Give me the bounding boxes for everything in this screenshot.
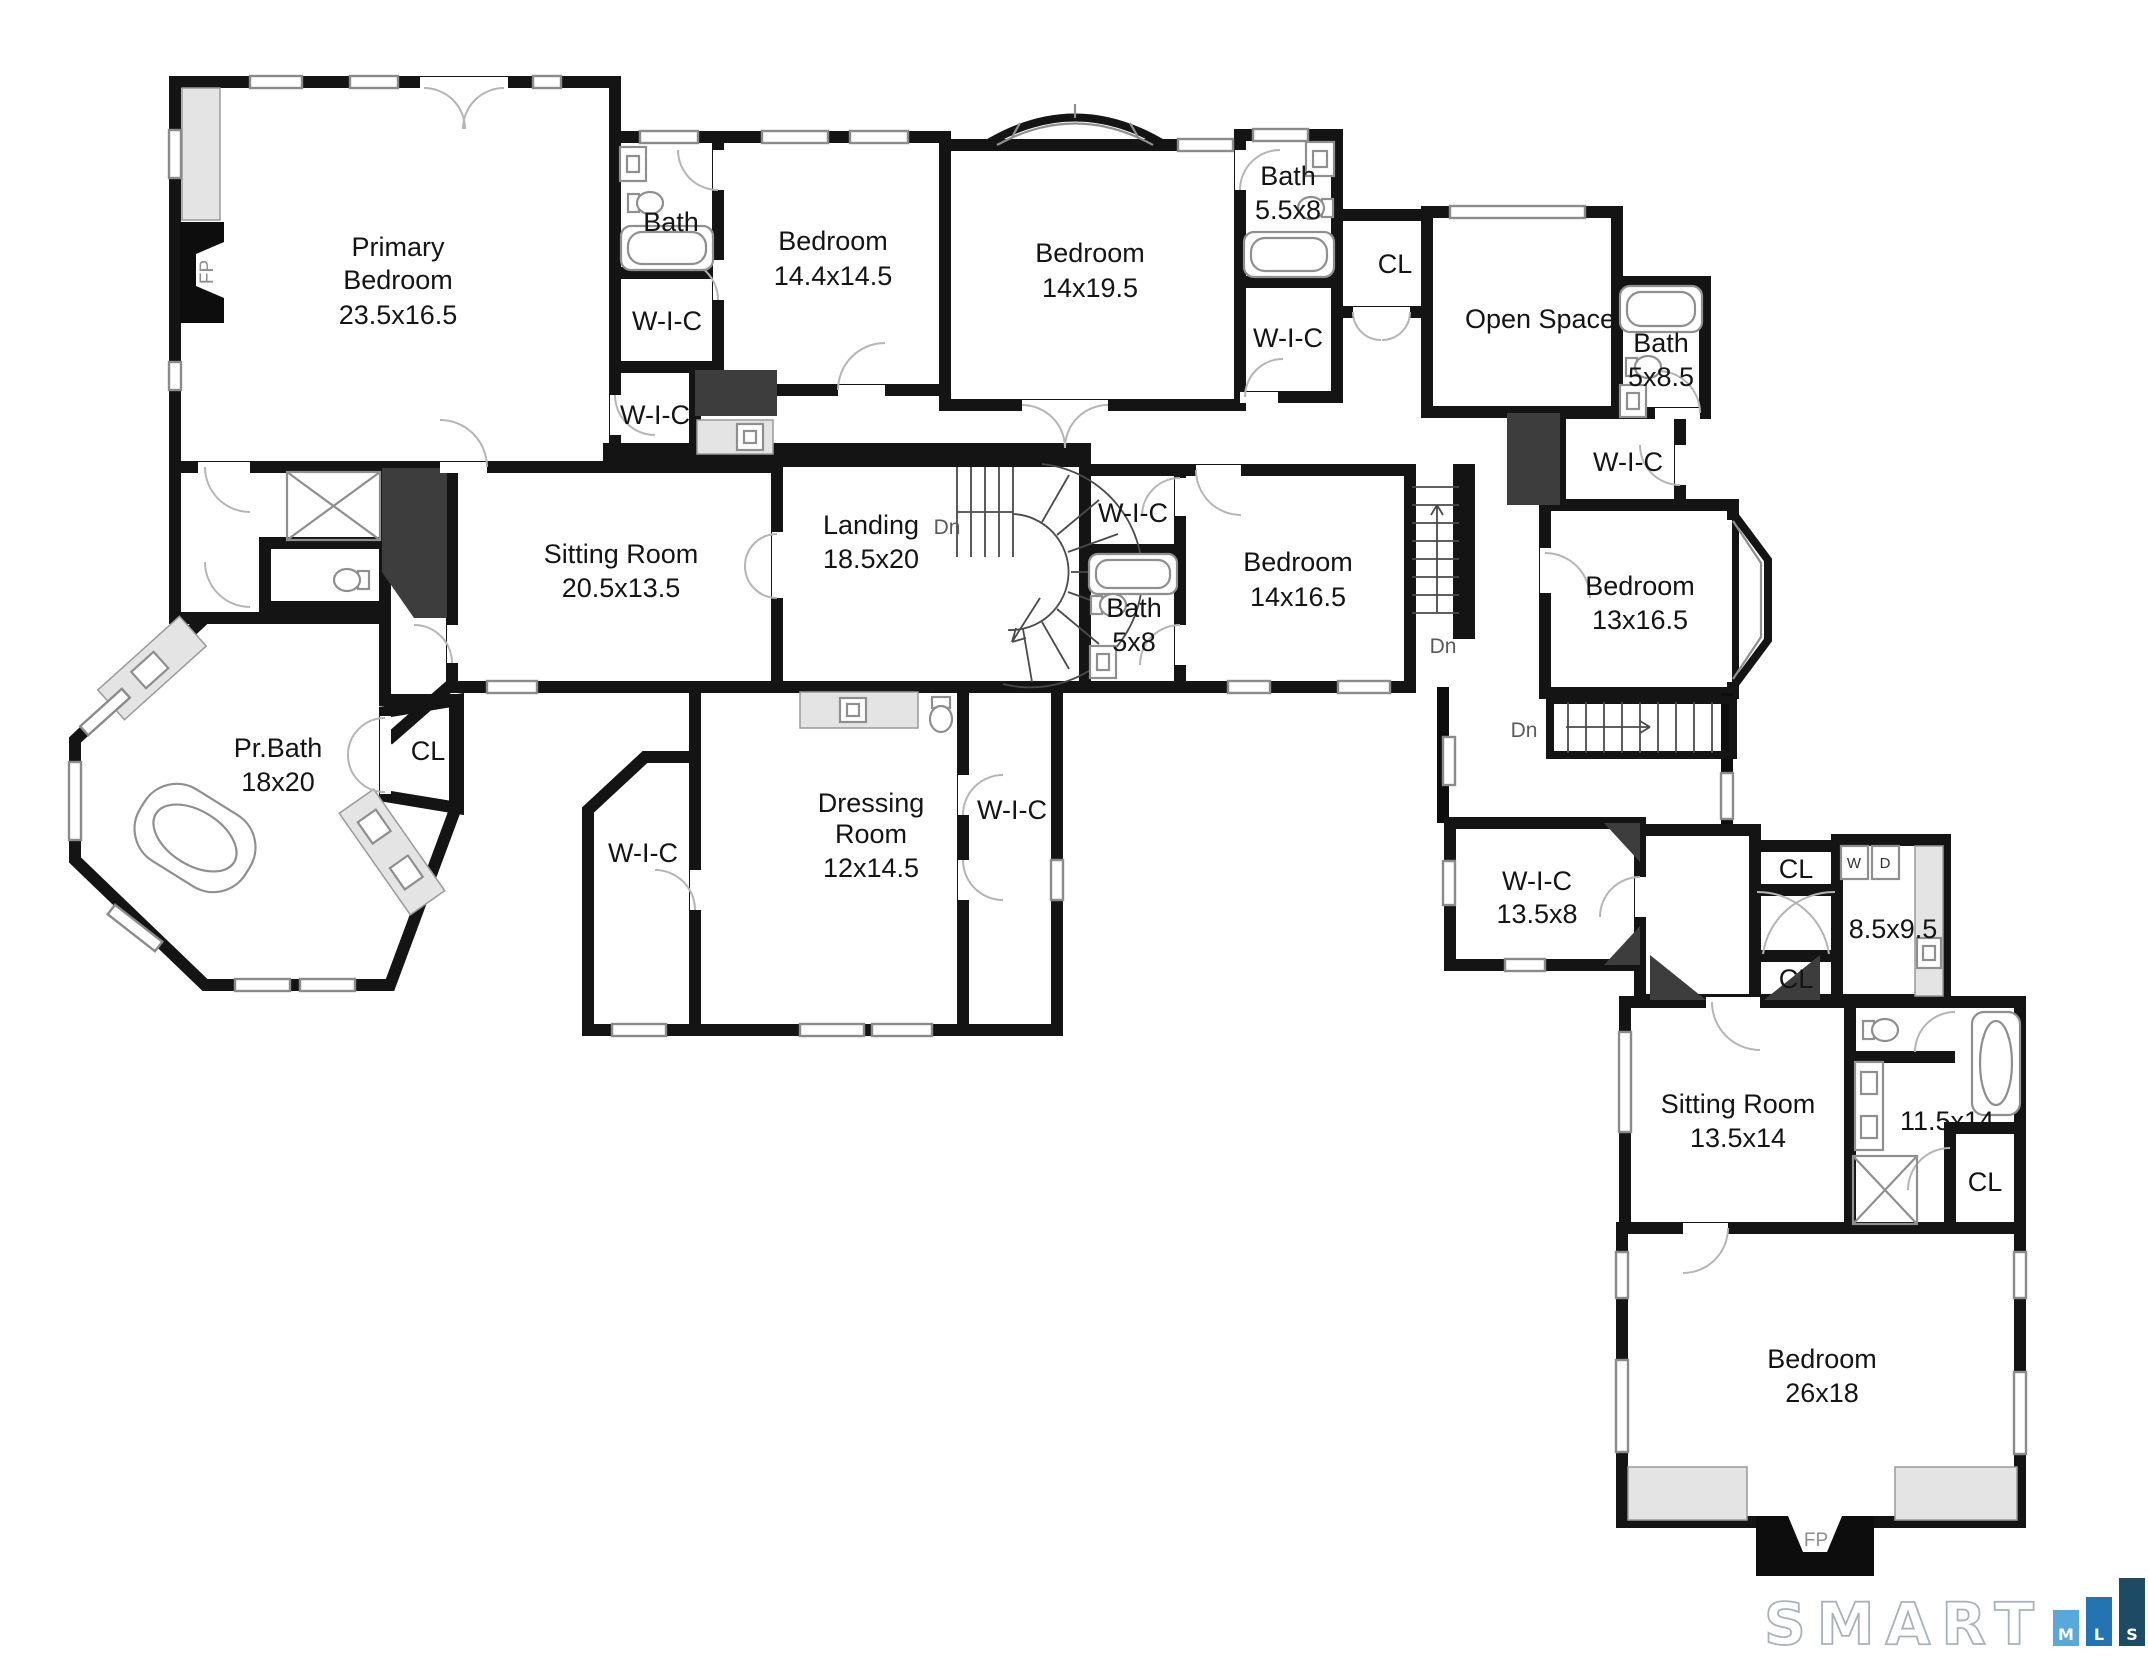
toilet <box>930 697 952 732</box>
room-label-wic: W-I-C <box>632 306 702 336</box>
logo-m-letter: M <box>2058 1625 2074 1644</box>
toilet <box>1863 1019 1898 1041</box>
room-label-pr-bath: Pr.Bath <box>234 733 323 763</box>
stair-label-dn: Dn <box>1430 635 1457 658</box>
room-dims-dressing-room: 12x14.5 <box>823 853 919 883</box>
room-dims-bedroom: 14.4x14.5 <box>774 261 893 291</box>
room-label-bath: Bath <box>1633 328 1689 358</box>
room-dims-laundry: 8.5x9.5 <box>1849 914 1938 944</box>
room-dims-sitting-room: 13.5x14 <box>1690 1123 1786 1153</box>
room-label-wic: W-I-C <box>620 400 690 430</box>
staircase-down-horizontal <box>1550 700 1733 755</box>
floor-plan-page: Primary Bedroom 23.5x16.5 Bath W-I-C W-I… <box>0 0 2148 1659</box>
room-label-bedroom: Bedroom <box>1585 571 1695 601</box>
room-label-bath: Bath <box>1260 161 1316 191</box>
room-label-cl: CL <box>1968 1167 2003 1197</box>
smartmls-logo: SMART M L S <box>1764 1578 2145 1658</box>
toilet <box>334 569 369 591</box>
washer-label: W <box>1847 855 1862 872</box>
sink <box>620 147 646 181</box>
logo-wordmark: SMART <box>1764 1590 2045 1658</box>
room-label-wic: W-I-C <box>1502 866 1572 896</box>
room-label-dressing-room: Dressing <box>818 788 925 818</box>
room-label-bedroom: Bedroom <box>1767 1344 1877 1374</box>
window-seat <box>1895 1467 2017 1520</box>
room-labels: Primary Bedroom 23.5x16.5 Bath W-I-C W-I… <box>197 161 2002 1551</box>
room-dims-bedroom: 26x18 <box>1785 1378 1859 1408</box>
room-label-cl: CL <box>1779 964 1814 994</box>
sink <box>737 424 763 450</box>
room-label-cl: CL <box>1779 854 1814 884</box>
room-label-bedroom: Bedroom <box>778 226 888 256</box>
room-label-primary-bedroom: Primary <box>352 232 445 262</box>
bathtub <box>1972 1012 2020 1115</box>
room-label-primary-bedroom: Bedroom <box>343 265 453 295</box>
room-dims-bedroom: 14x16.5 <box>1250 582 1346 612</box>
room-label-bath: Bath <box>1106 593 1162 623</box>
room-label-landing: Landing <box>823 510 919 540</box>
room-dims-bath: 5x8 <box>1112 627 1156 657</box>
room-label-bedroom: Bedroom <box>1243 547 1353 577</box>
stair-label-dn: Dn <box>1511 719 1538 742</box>
fireplace-label: FP <box>197 260 218 284</box>
sink <box>840 698 866 722</box>
room-dims-wic: 13.5x8 <box>1496 899 1577 929</box>
room-label-wic: W-I-C <box>1593 447 1663 477</box>
stair-label-dn: Dn <box>934 516 961 539</box>
logo-l-letter: L <box>2094 1625 2104 1644</box>
staircase-down-vertical <box>1412 487 1459 613</box>
bathtub <box>1089 554 1177 594</box>
floor-plan-drawing: Primary Bedroom 23.5x16.5 Bath W-I-C W-I… <box>0 0 2148 1659</box>
room-dims-sitting-room: 20.5x13.5 <box>562 573 681 603</box>
bathtub <box>1620 286 1702 332</box>
room-label-sitting-room: Sitting Room <box>1661 1089 1816 1119</box>
room-dims-bath: 5.5x8 <box>1255 195 1321 225</box>
room-label-wic: W-I-C <box>1253 323 1323 353</box>
room-label-dressing-room: Room <box>835 819 907 849</box>
closet-strip <box>182 88 220 220</box>
window-seat <box>1628 1467 1747 1520</box>
fireplace-label: FP <box>1804 1530 1828 1551</box>
double-sink-vanity <box>1855 1062 1883 1150</box>
shower <box>287 472 380 540</box>
logo-s-letter: S <box>2126 1625 2138 1644</box>
room-dims-landing: 18.5x20 <box>823 544 919 574</box>
room-label-open-space: Open Space <box>1465 304 1615 334</box>
room-label-wic: W-I-C <box>608 838 678 868</box>
room-label-cl: CL <box>411 736 446 766</box>
room-dims-primary-bedroom: 23.5x16.5 <box>339 300 458 330</box>
room-label-wic: W-I-C <box>1098 498 1168 528</box>
room-label-wic: W-I-C <box>977 795 1047 825</box>
room-label-bath: Bath <box>643 207 699 237</box>
room-dims-bath: 5x8.5 <box>1628 362 1694 392</box>
room-dims-pr-bath: 18x20 <box>241 767 315 797</box>
dryer-label: D <box>1880 855 1891 872</box>
room-dims-bedroom: 13x16.5 <box>1592 605 1688 635</box>
room-label-sitting-room: Sitting Room <box>544 539 699 569</box>
room-dims-bath: 11.5x14 <box>1900 1106 1994 1136</box>
room-label-cl: CL <box>1378 249 1413 279</box>
bathtub <box>1244 232 1334 277</box>
room-label-bedroom: Bedroom <box>1035 238 1145 268</box>
room-dims-bedroom: 14x19.5 <box>1042 273 1138 303</box>
